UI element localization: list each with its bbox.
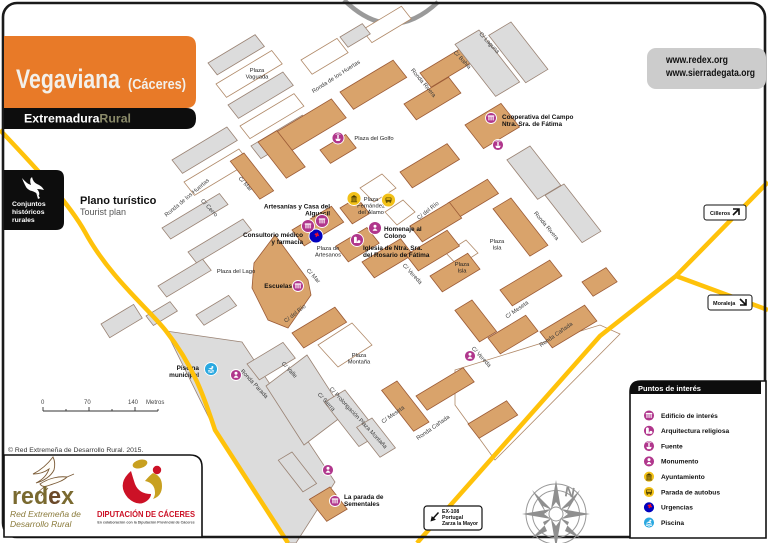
svg-text:Monumento: Monumento (661, 459, 698, 466)
svg-text:© Red Extremeña de Desarrollo: © Red Extremeña de Desarrollo Rural. 201… (8, 446, 143, 454)
svg-text:La parada deSementales: La parada deSementales (344, 494, 384, 508)
svg-text:redex: redex (12, 483, 75, 510)
svg-text:Cilleros: Cilleros (710, 211, 730, 217)
svg-text:Ayuntamiento: Ayuntamiento (661, 474, 705, 481)
svg-text:Plaza del Golfo: Plaza del Golfo (354, 136, 393, 142)
svg-text:Plaza deArtesanos: Plaza deArtesanos (315, 246, 341, 259)
svg-text:70: 70 (84, 400, 91, 406)
svg-text:www.sierradegata.org: www.sierradegata.org (665, 68, 755, 79)
svg-text:Vegaviana: Vegaviana (16, 64, 121, 94)
svg-text:Red Extremeña de: Red Extremeña de (10, 509, 81, 519)
svg-text:Piscina: Piscina (661, 520, 684, 527)
svg-text:Urgencias: Urgencias (661, 505, 693, 512)
svg-text:Metros: Metros (146, 400, 164, 406)
svg-text:Edificio de interés: Edificio de interés (661, 413, 718, 420)
svg-text:DIPUTACIÓN DE CÁCERES: DIPUTACIÓN DE CÁCERES (97, 508, 195, 519)
svg-text:Puntos de interés: Puntos de interés (638, 384, 701, 393)
svg-text:Conjuntos: Conjuntos (12, 201, 46, 208)
svg-text:Parada de autobus: Parada de autobus (661, 489, 720, 496)
svg-text:Desarrollo Rural: Desarrollo Rural (10, 519, 73, 529)
svg-text:Plano turístico: Plano turístico (80, 195, 157, 207)
svg-text:(Cáceres): (Cáceres) (128, 77, 186, 93)
svg-text:Plaza del Lago: Plaza del Lago (217, 269, 255, 275)
svg-text:ExtremaduraRural: ExtremaduraRural (24, 114, 131, 126)
svg-text:rurales: rurales (12, 217, 35, 224)
svg-text:Moraleja: Moraleja (713, 301, 736, 307)
svg-text:históricos: históricos (12, 209, 45, 216)
svg-text:Tourist plan: Tourist plan (80, 207, 126, 217)
svg-text:Arquitectura religiosa: Arquitectura religiosa (661, 428, 729, 435)
svg-text:En colaboración con la Diputac: En colaboración con la Diputación Provin… (97, 521, 194, 525)
svg-text:Iglesia de Ntra. Sra.del Rosar: Iglesia de Ntra. Sra.del Rosario de Fáti… (363, 245, 430, 259)
svg-text:Escuelas: Escuelas (264, 283, 292, 290)
svg-text:www.redex.org: www.redex.org (665, 55, 728, 66)
svg-text:140: 140 (128, 400, 139, 406)
svg-text:Fuente: Fuente (661, 443, 683, 450)
svg-text:Zarza la Mayor: Zarza la Mayor (442, 521, 478, 527)
